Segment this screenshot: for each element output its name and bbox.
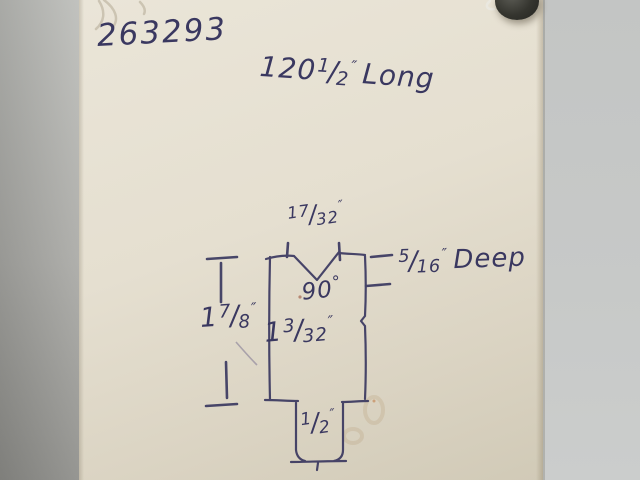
leader-line (236, 342, 257, 365)
v-angle-label: 90° (300, 272, 343, 306)
tongue-center-tick (317, 463, 318, 470)
stain-mark (344, 397, 383, 443)
hook-wire (487, 1, 494, 9)
v-depth-annotation: 5/16″Deep (398, 243, 526, 279)
photo-scene: 263293 1201/2″Long 17/32″ 90° 5/16″Deep … (0, 0, 640, 480)
v-depth-dashes (366, 255, 392, 286)
rust-speck (373, 400, 376, 403)
height-dimension: 17/8″ (199, 299, 257, 336)
tongue-dimension: 1/2″ (299, 405, 337, 441)
body-dimension: 13/32″ (263, 312, 334, 351)
part-number: 263293 (96, 11, 228, 54)
